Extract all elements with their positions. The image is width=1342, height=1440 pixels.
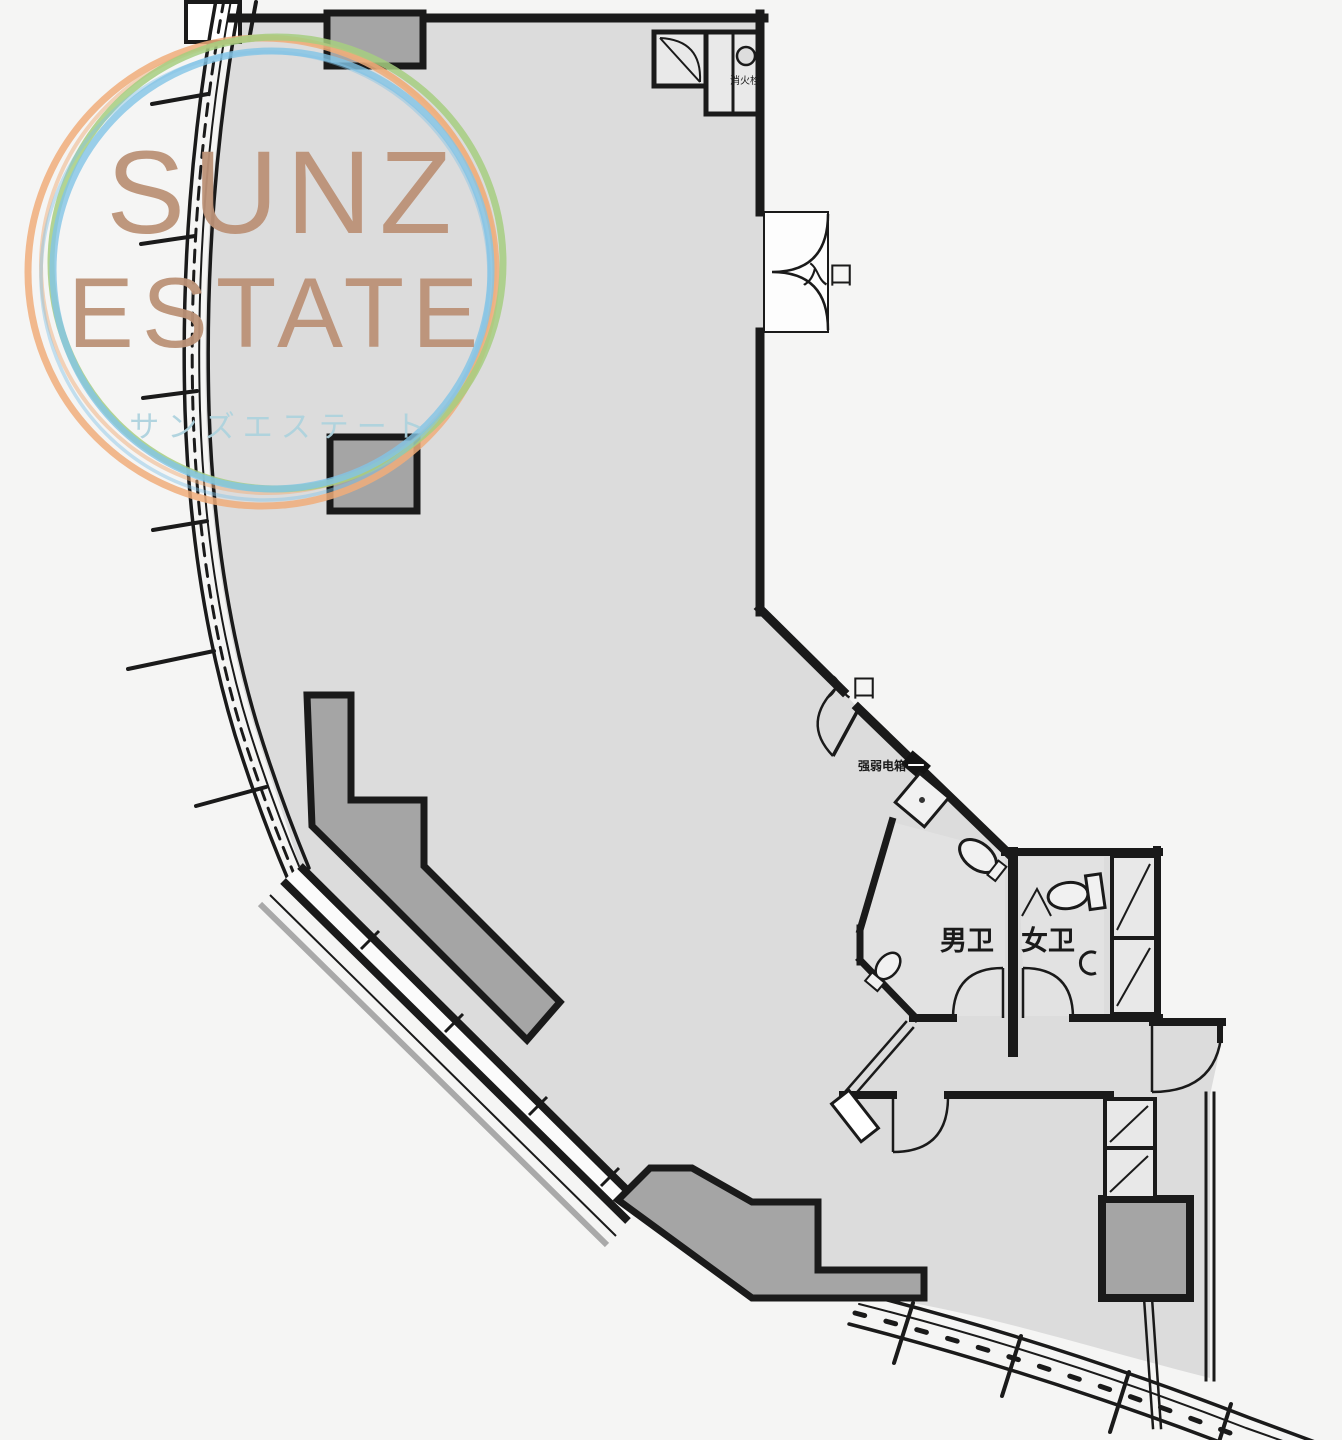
entrance-top-label: 入口 <box>802 260 854 290</box>
floorplan-canvas: 入口 入口 强弱电箱 消火栓 <box>0 0 1342 1440</box>
fire-hydrant-label: 消火栓 <box>730 74 760 87</box>
watermark-line2: ESTATE <box>68 257 486 368</box>
watermark-line3: サンズエステート <box>129 411 432 444</box>
entrance-side-label: 入口 <box>825 673 877 703</box>
watermark-line1: SUNZ <box>106 127 459 259</box>
mens-toilet-label: 男卫 <box>940 926 994 956</box>
shaft-cabinets-lower <box>1105 1099 1155 1198</box>
shaft-cabinets-upper <box>1112 856 1156 1014</box>
womens-toilet-label: 女卫 <box>1021 925 1075 956</box>
hydrant-reel-icon <box>737 47 755 65</box>
electrical-box-label: 强弱电箱 <box>858 758 906 773</box>
column-bottom-right <box>1102 1199 1190 1298</box>
floorplan-svg: 入口 入口 强弱电箱 消火栓 <box>0 0 1342 1440</box>
